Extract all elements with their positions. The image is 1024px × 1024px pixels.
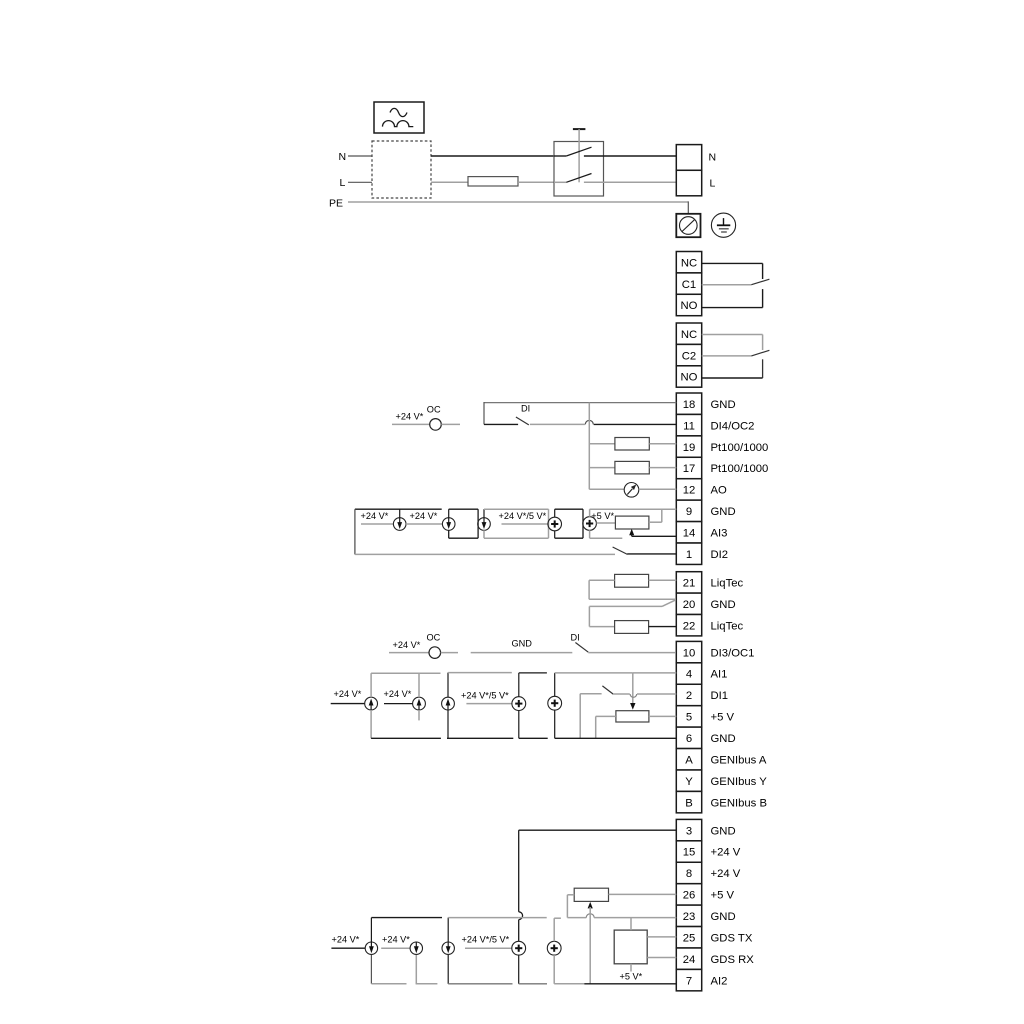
svg-text:GENIbus B: GENIbus B xyxy=(711,797,768,809)
svg-text:7: 7 xyxy=(686,975,692,987)
svg-text:NO: NO xyxy=(681,372,698,384)
svg-text:+24 V*: +24 V* xyxy=(361,511,389,521)
svg-text:AI2: AI2 xyxy=(711,975,728,987)
svg-text:N: N xyxy=(339,151,347,163)
svg-text:C2: C2 xyxy=(682,350,696,362)
svg-text:GND: GND xyxy=(711,733,736,745)
svg-text:GND: GND xyxy=(711,399,736,411)
svg-text:C1: C1 xyxy=(682,279,696,291)
svg-text:AI3: AI3 xyxy=(711,527,728,539)
svg-text:26: 26 xyxy=(683,890,696,902)
svg-text:GND: GND xyxy=(512,638,533,648)
svg-text:+24 V*: +24 V* xyxy=(382,935,410,945)
svg-text:6: 6 xyxy=(686,733,692,745)
svg-text:+24 V*: +24 V* xyxy=(410,511,438,521)
svg-text:PE: PE xyxy=(329,197,343,209)
svg-text:+24 V*/5 V*: +24 V*/5 V* xyxy=(499,511,547,521)
svg-text:24: 24 xyxy=(683,954,696,966)
svg-text:B: B xyxy=(685,797,693,809)
svg-text:DI3/OC1: DI3/OC1 xyxy=(711,647,755,659)
svg-text:GENIbus Y: GENIbus Y xyxy=(711,776,768,788)
svg-text:20: 20 xyxy=(683,599,696,611)
svg-text:25: 25 xyxy=(683,932,696,944)
svg-text:+5 V: +5 V xyxy=(711,890,735,902)
svg-text:15: 15 xyxy=(683,847,696,859)
svg-text:18: 18 xyxy=(683,399,696,411)
svg-text:2: 2 xyxy=(686,690,692,702)
svg-text:DI: DI xyxy=(521,404,530,414)
svg-text:L: L xyxy=(340,177,346,189)
svg-text:8: 8 xyxy=(686,868,692,880)
svg-text:NO: NO xyxy=(681,300,698,312)
svg-text:DI: DI xyxy=(571,633,580,643)
svg-text:1: 1 xyxy=(686,549,692,561)
svg-text:23: 23 xyxy=(683,911,696,923)
svg-text:19: 19 xyxy=(683,442,696,454)
svg-text:GND: GND xyxy=(711,825,736,837)
svg-text:22: 22 xyxy=(683,620,696,632)
svg-text:GND: GND xyxy=(711,599,736,611)
svg-text:GDS TX: GDS TX xyxy=(711,932,753,944)
svg-text:DI4/OC2: DI4/OC2 xyxy=(711,420,755,432)
svg-text:Pt100/1000: Pt100/1000 xyxy=(711,442,769,454)
svg-text:+24 V*/5 V*: +24 V*/5 V* xyxy=(461,690,509,700)
svg-text:GND: GND xyxy=(711,911,736,923)
svg-text:+24 V*: +24 V* xyxy=(384,689,412,699)
svg-text:OC: OC xyxy=(427,633,441,643)
svg-text:5: 5 xyxy=(686,712,692,724)
svg-text:+5 V: +5 V xyxy=(711,712,735,724)
svg-text:DI1: DI1 xyxy=(711,690,729,702)
svg-text:N: N xyxy=(709,152,717,164)
svg-text:DI2: DI2 xyxy=(711,549,729,561)
svg-text:9: 9 xyxy=(686,506,692,518)
svg-text:+24 V*: +24 V* xyxy=(332,935,360,945)
svg-text:LiqTec: LiqTec xyxy=(711,620,744,632)
svg-text:12: 12 xyxy=(683,485,696,497)
svg-text:GENIbus A: GENIbus A xyxy=(711,754,767,766)
svg-text:+24 V*: +24 V* xyxy=(334,689,362,699)
svg-text:11: 11 xyxy=(683,420,695,432)
svg-text:10: 10 xyxy=(683,647,696,659)
svg-text:L: L xyxy=(710,177,716,189)
svg-text:AI1: AI1 xyxy=(711,669,728,681)
svg-text:+24 V*: +24 V* xyxy=(396,412,424,422)
svg-text:17: 17 xyxy=(683,463,696,475)
svg-text:GND: GND xyxy=(711,506,736,518)
svg-text:GDS RX: GDS RX xyxy=(711,954,755,966)
svg-text:+24 V: +24 V xyxy=(711,868,741,880)
svg-text:OC: OC xyxy=(427,404,441,414)
svg-text:+5 V*: +5 V* xyxy=(591,511,614,521)
svg-text:A: A xyxy=(685,754,693,766)
svg-text:NC: NC xyxy=(681,257,697,269)
svg-text:Pt100/1000: Pt100/1000 xyxy=(711,463,769,475)
svg-text:+5 V*: +5 V* xyxy=(620,972,643,982)
svg-text:LiqTec: LiqTec xyxy=(711,578,744,590)
svg-text:+24 V: +24 V xyxy=(711,847,741,859)
svg-text:21: 21 xyxy=(683,578,696,590)
svg-text:3: 3 xyxy=(686,825,692,837)
svg-text:AO: AO xyxy=(711,485,728,497)
svg-text:14: 14 xyxy=(683,527,696,539)
svg-text:Y: Y xyxy=(685,776,693,788)
svg-text:+24 V*: +24 V* xyxy=(393,640,421,650)
svg-text:4: 4 xyxy=(686,669,692,681)
svg-text:NC: NC xyxy=(681,329,697,341)
svg-text:+24 V*/5 V*: +24 V*/5 V* xyxy=(462,935,510,945)
